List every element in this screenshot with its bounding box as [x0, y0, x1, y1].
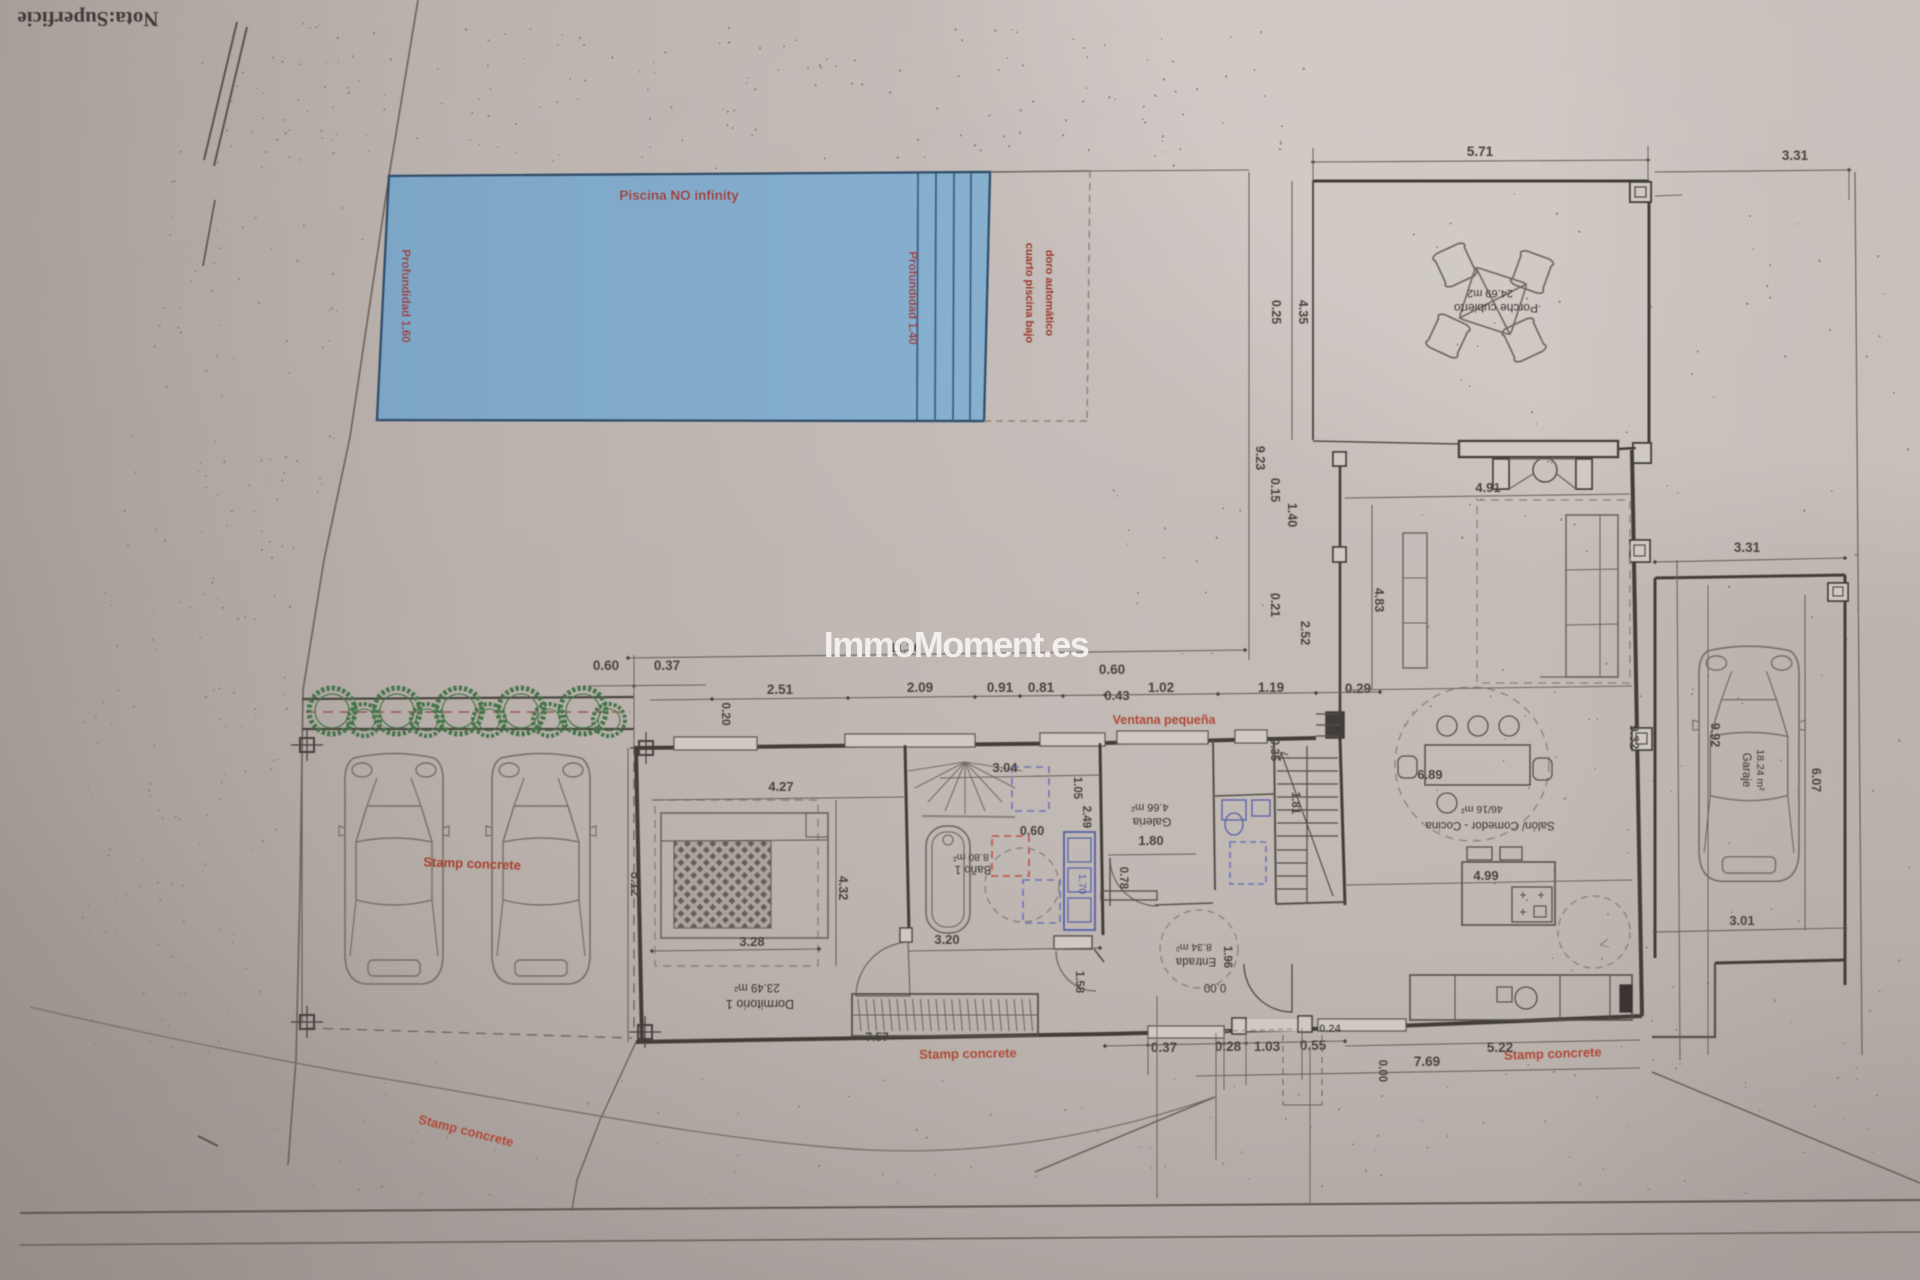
svg-text:Galeria: Galeria	[1132, 815, 1171, 829]
svg-text:24.69 m2: 24.69 m2	[1467, 287, 1513, 299]
svg-text:2.51: 2.51	[767, 682, 794, 697]
svg-text:9.32: 9.32	[1627, 725, 1641, 749]
svg-text:8.80 m²: 8.80 m²	[953, 851, 989, 863]
svg-text:1.96: 1.96	[1221, 946, 1233, 968]
svg-text:0.91: 0.91	[987, 680, 1014, 695]
svg-text:2.49: 2.49	[1080, 806, 1092, 828]
svg-text:18.24 m²: 18.24 m²	[1754, 749, 1766, 791]
svg-text:Porche cubierto: Porche cubierto	[1454, 301, 1538, 315]
svg-text:5.22: 5.22	[1487, 1040, 1513, 1055]
svg-text:9.92: 9.92	[1708, 723, 1722, 747]
svg-text:4.27: 4.27	[768, 779, 793, 794]
svg-text:0.37: 0.37	[1151, 1040, 1177, 1055]
svg-text:9.23: 9.23	[1253, 446, 1267, 470]
svg-text:0.24: 0.24	[1319, 1023, 1341, 1035]
svg-text:2.09: 2.09	[907, 680, 933, 695]
svg-text:6.89: 6.89	[1417, 767, 1442, 782]
svg-text:4.83: 4.83	[1372, 588, 1386, 612]
svg-text:0.28: 0.28	[1215, 1039, 1242, 1054]
svg-text:46/16 m²: 46/16 m²	[1461, 803, 1503, 815]
svg-text:4.32: 4.32	[836, 876, 850, 900]
svg-text:0.25: 0.25	[1269, 300, 1283, 324]
svg-text:0.55: 0.55	[1300, 1038, 1327, 1053]
svg-text:1.58: 1.58	[1073, 971, 1085, 994]
svg-text:Dormitorio 1: Dormitorio 1	[726, 997, 794, 1011]
svg-text:0.43: 0.43	[1104, 688, 1129, 703]
svg-text:Ventana pequeña: Ventana pequeña	[1113, 713, 1217, 727]
svg-text:6.07: 6.07	[1809, 768, 1823, 792]
svg-text:0.37: 0.37	[654, 658, 680, 673]
svg-text:1.02: 1.02	[1148, 680, 1174, 695]
svg-text:0.60: 0.60	[1020, 824, 1044, 838]
svg-text:Entrada: Entrada	[1175, 955, 1216, 967]
svg-text:5.71: 5.71	[1467, 144, 1494, 159]
svg-text:1.03: 1.03	[1254, 1039, 1281, 1054]
svg-text:0.78: 0.78	[1117, 867, 1129, 890]
svg-text:23.49 m²: 23.49 m²	[734, 981, 780, 993]
svg-text:4.91: 4.91	[1475, 480, 1500, 495]
svg-text:0.20: 0.20	[719, 702, 733, 726]
svg-text:Profundidad 1.40: Profundidad 1.40	[906, 251, 918, 344]
svg-text:3.28: 3.28	[739, 934, 764, 949]
svg-text:7.69: 7.69	[1414, 1054, 1440, 1069]
svg-text:1.70: 1.70	[1076, 874, 1088, 895]
svg-text:3.31: 3.31	[1782, 148, 1809, 163]
svg-text:Salón/ Comedor - Cocina: Salón/ Comedor - Cocina	[1425, 819, 1555, 831]
svg-text:Nota:Superficie: Nota:Superficie	[17, 7, 158, 31]
svg-text:doro automático: doro automático	[1043, 250, 1055, 336]
svg-text:0.60: 0.60	[1099, 662, 1125, 677]
svg-text:0.81: 0.81	[1028, 680, 1055, 695]
svg-text:0.21: 0.21	[1268, 593, 1282, 617]
svg-text:Piscina NO infinity: Piscina NO infinity	[619, 188, 739, 203]
svg-text:4.66 m²: 4.66 m²	[1131, 801, 1169, 813]
svg-text:2.52: 2.52	[1298, 621, 1312, 645]
svg-text:0.00: 0.00	[1204, 981, 1226, 993]
svg-text:3.20: 3.20	[934, 932, 959, 947]
svg-text:Garaje: Garaje	[1740, 753, 1752, 788]
svg-text:0.60: 0.60	[593, 658, 619, 673]
svg-text:Stamp concrete: Stamp concrete	[919, 1045, 1017, 1062]
svg-text:0.00: 0.00	[1376, 1060, 1388, 1082]
svg-text:Profundidad 1.60: Profundidad 1.60	[399, 249, 411, 342]
svg-text:3.01: 3.01	[1729, 913, 1754, 928]
svg-text:1.19: 1.19	[1258, 680, 1284, 695]
svg-text:Baño 1: Baño 1	[955, 863, 991, 875]
svg-text:7.57: 7.57	[865, 1030, 889, 1044]
svg-text:1.80: 1.80	[1138, 833, 1163, 848]
svg-text:0.29: 0.29	[1345, 681, 1371, 696]
svg-text:1.05: 1.05	[1071, 777, 1083, 800]
svg-text:ImmoMoment.es: ImmoMoment.es	[824, 624, 1089, 665]
svg-text:1.40: 1.40	[1285, 503, 1299, 527]
svg-text:8.34 m²: 8.34 m²	[1176, 941, 1212, 953]
svg-text:5.12: 5.12	[628, 872, 642, 896]
svg-text:3.31: 3.31	[1734, 540, 1761, 555]
svg-text:3.04: 3.04	[992, 760, 1018, 775]
svg-text:1.81: 1.81	[1289, 792, 1301, 815]
svg-text:cuarto piscina bajo: cuarto piscina bajo	[1023, 243, 1035, 344]
svg-text:0.35: 0.35	[1268, 739, 1280, 762]
svg-text:4.99: 4.99	[1473, 868, 1498, 883]
svg-text:4.35: 4.35	[1296, 300, 1310, 324]
svg-text:0.15: 0.15	[1268, 478, 1282, 502]
